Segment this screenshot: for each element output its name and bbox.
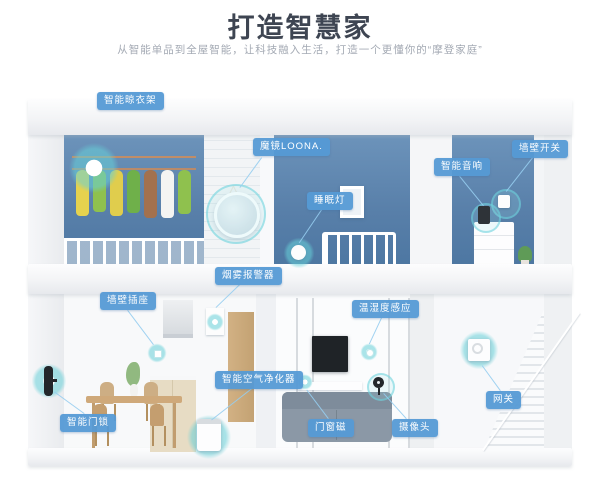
label-temp-humidity: 温湿度感应 [352, 300, 419, 318]
temp-humidity-device [360, 343, 378, 361]
smart-home-illustration: 智能晾衣架 魔镜LOONA. 睡眠灯 智能音响 墙壁开关 烟雾报警器 墙壁插座 … [0, 0, 600, 480]
gateway-device [468, 339, 490, 361]
label-drying-rack: 智能晾衣架 [97, 92, 164, 110]
chair-legs [152, 426, 166, 446]
clothes-item [178, 170, 191, 214]
label-gateway: 网关 [486, 391, 521, 409]
bed-frame [322, 232, 396, 268]
camera-stand [378, 388, 380, 395]
label-wall-switch: 墙壁开关 [512, 140, 568, 158]
dresser-drawer [474, 250, 514, 263]
label-sleep-lamp: 睡眠灯 [307, 192, 353, 210]
label-magic-mirror: 魔镜LOONA. [253, 138, 330, 156]
label-camera: 摄像头 [392, 419, 438, 437]
air-purifier-device [197, 419, 221, 451]
mirror-ring [206, 184, 266, 244]
lock-handle [51, 379, 57, 382]
camera-device [373, 377, 384, 388]
label-door-window-sensor: 门窗磁 [308, 419, 354, 437]
purifier-grill [197, 419, 221, 424]
sensor-icon [366, 349, 374, 357]
tv-screen [312, 336, 348, 372]
label-smart-speaker: 智能音响 [434, 158, 490, 176]
smoke-alarm-glow [206, 313, 224, 331]
label-smoke-alarm: 烟雾报警器 [215, 267, 282, 285]
range-hood [163, 300, 193, 338]
label-air-purifier: 智能空气净化器 [215, 371, 303, 389]
clothes-item [127, 170, 140, 213]
dining-chair-near-right [150, 404, 166, 446]
smart-speaker-device [478, 206, 490, 224]
interior-door [228, 312, 254, 422]
wall-socket-device [147, 343, 167, 363]
door-lock-device [44, 366, 53, 396]
ground-slab [28, 448, 572, 466]
dining-table-leg [173, 403, 176, 448]
label-wall-socket: 墙壁插座 [100, 292, 156, 310]
flower-vase-stems [126, 362, 140, 386]
sleep-lamp-device [291, 245, 306, 260]
label-door-lock: 智能门锁 [60, 414, 116, 432]
dining-table-top [86, 396, 182, 403]
camera-lens [377, 381, 380, 384]
chair-back [150, 404, 164, 426]
wall-switch-device [498, 195, 510, 208]
clothes-item [144, 170, 157, 218]
socket-icon [154, 350, 162, 358]
drying-rack-glow [68, 142, 120, 194]
gateway-circle [472, 343, 483, 354]
dresser-drawer [474, 236, 514, 250]
clothes-item [161, 170, 174, 218]
hallway-opening [410, 132, 452, 266]
